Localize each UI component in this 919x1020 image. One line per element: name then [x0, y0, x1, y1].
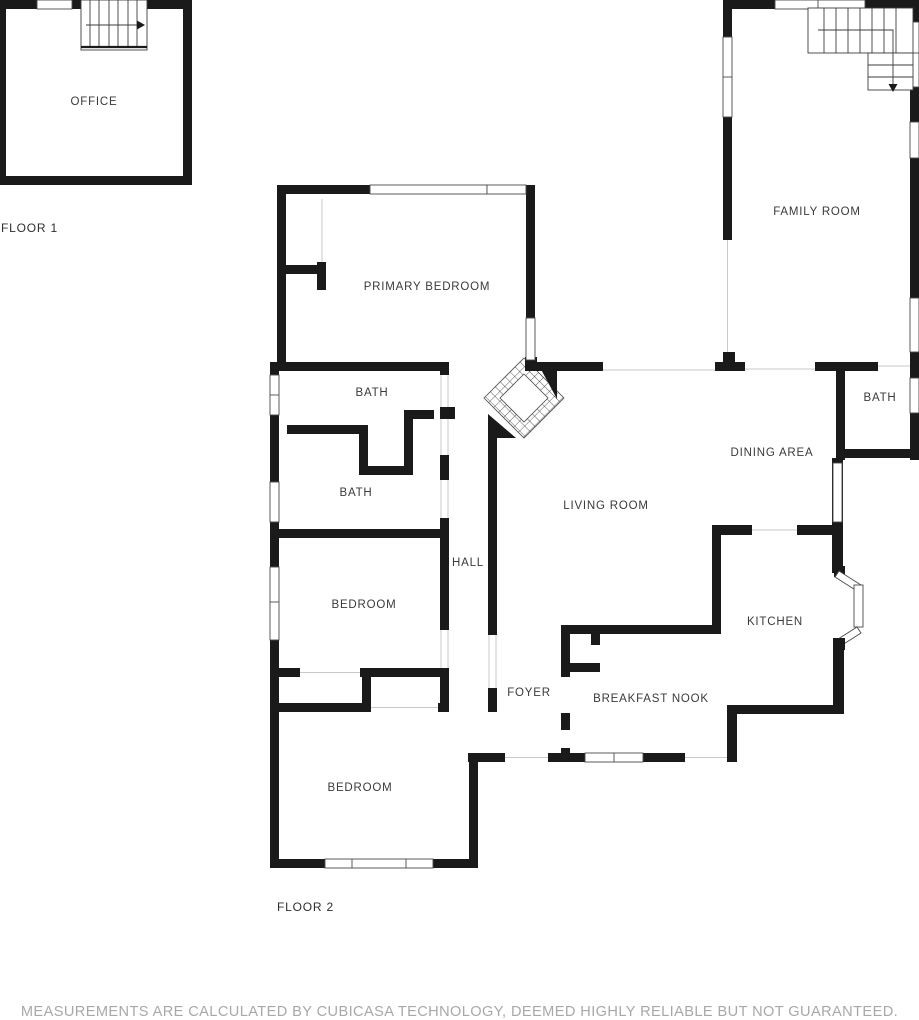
room-label-breakfast-nook: BREAKFAST NOOK	[593, 693, 709, 705]
floorplan-page: { "document": { "type": "floor-plan", "p…	[0, 0, 919, 1016]
bath-window	[270, 482, 279, 522]
room-label-foyer: FOYER	[507, 687, 551, 699]
floor2-label: FLOOR 2	[277, 900, 334, 914]
dining-side-window	[833, 463, 842, 522]
bedroom-window	[270, 567, 279, 640]
room-label-primary-bedroom: PRIMARY BEDROOM	[364, 281, 491, 293]
room-label-family-room: FAMILY ROOM	[773, 206, 861, 218]
primary-bedroom-window	[487, 185, 526, 194]
bath-right-window	[910, 378, 919, 413]
measurement-disclaimer: MEASUREMENTS ARE CALCULATED BY CUBICASA …	[0, 1004, 919, 1020]
primary-bedroom-side-window	[526, 318, 535, 360]
room-label-office: OFFICE	[71, 96, 118, 108]
room-label-bath-lower: BATH	[339, 487, 372, 499]
room-label-bedroom-bottom: BEDROOM	[327, 782, 392, 794]
floor1-plan	[0, 0, 192, 185]
floorplan-canvas: OFFICE FLOOR 1 PRIMARY BEDROOM FAMILY RO…	[0, 0, 919, 1016]
room-label-bath-upper: BATH	[355, 387, 388, 399]
room-label-living-room: LIVING ROOM	[563, 500, 648, 512]
room-label-kitchen: KITCHEN	[747, 616, 803, 628]
room-label-dining-area: DINING AREA	[731, 447, 814, 459]
room-label-hall: HALL	[452, 557, 484, 569]
floor1-label: FLOOR 1	[1, 221, 58, 235]
primary-bedroom-window	[370, 185, 487, 194]
bedroom-bottom-window	[325, 859, 433, 868]
room-label-bath-right: BATH	[863, 392, 896, 404]
family-room-stairs	[808, 8, 913, 92]
room-labels: OFFICE FLOOR 1 PRIMARY BEDROOM FAMILY RO…	[1, 96, 897, 914]
family-room-right-window	[910, 122, 919, 158]
floor2-plan	[270, 0, 919, 868]
office-top-window	[37, 0, 72, 9]
office-stairs	[81, 0, 147, 50]
room-label-bedroom-middle: BEDROOM	[331, 599, 396, 611]
kitchen-bay-window	[833, 566, 863, 650]
family-room-right-window	[910, 298, 919, 352]
